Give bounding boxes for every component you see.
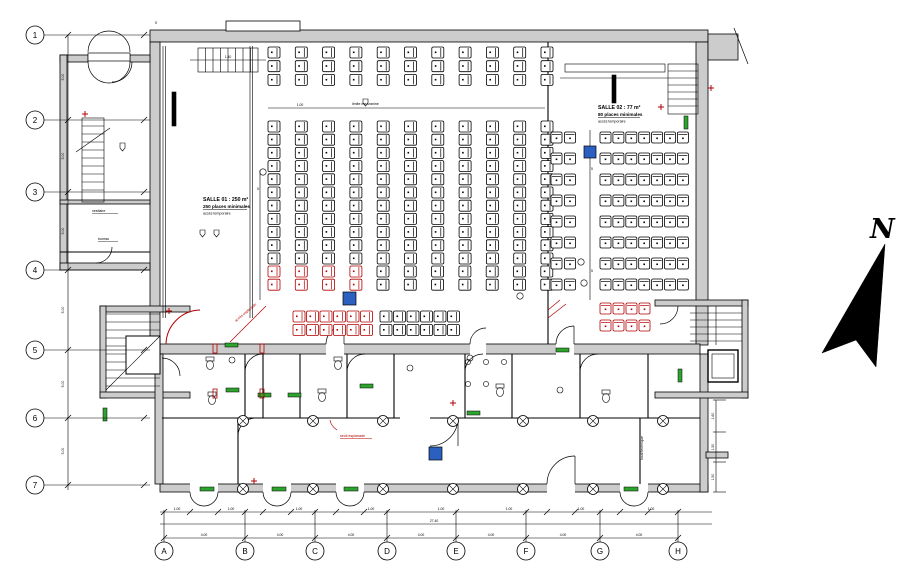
seat-dot bbox=[364, 316, 366, 318]
seat-dot bbox=[380, 52, 382, 54]
seat-dot bbox=[437, 329, 439, 331]
seat-dot bbox=[353, 192, 355, 194]
seat-dot bbox=[435, 178, 437, 180]
blue-marker bbox=[429, 447, 442, 460]
seat bbox=[514, 227, 526, 238]
seat bbox=[350, 187, 362, 198]
seat-dot bbox=[656, 285, 658, 287]
seat bbox=[432, 200, 444, 211]
seat-dot bbox=[326, 152, 328, 154]
seat bbox=[459, 187, 471, 198]
seat-dot bbox=[462, 271, 464, 273]
seat bbox=[320, 311, 332, 322]
seat-dot bbox=[271, 258, 273, 260]
seat-dot bbox=[489, 79, 491, 81]
seat bbox=[295, 147, 307, 158]
seat bbox=[541, 47, 553, 58]
seat bbox=[421, 311, 433, 322]
seat-dot bbox=[556, 138, 558, 140]
seat bbox=[432, 253, 444, 264]
seat-dot bbox=[380, 244, 382, 246]
seat-dot bbox=[435, 126, 437, 128]
seat-dot bbox=[462, 231, 464, 233]
seat-dot bbox=[656, 264, 658, 266]
seat-dot bbox=[556, 243, 558, 245]
seat-dot bbox=[544, 205, 546, 207]
seat-dot bbox=[618, 201, 620, 203]
seat-dot bbox=[669, 264, 671, 266]
seat-dot bbox=[618, 222, 620, 224]
seat bbox=[323, 134, 335, 145]
seat-dot bbox=[517, 65, 519, 67]
mezzanine-label: limite mezzanine bbox=[352, 102, 379, 106]
seat bbox=[459, 134, 471, 145]
seat bbox=[541, 61, 553, 72]
seat bbox=[268, 213, 280, 224]
seat bbox=[268, 134, 280, 145]
seat bbox=[459, 253, 471, 264]
seat-dot bbox=[298, 178, 300, 180]
seat bbox=[486, 61, 498, 72]
seat-dot bbox=[380, 65, 382, 67]
grid-bubble-label: A bbox=[161, 547, 167, 556]
seat-dot bbox=[408, 152, 410, 154]
seat bbox=[377, 121, 389, 132]
seat-dot bbox=[682, 201, 684, 203]
seat bbox=[377, 47, 389, 58]
dimension-text: 5.00 bbox=[61, 448, 65, 455]
seat bbox=[486, 47, 498, 58]
seat bbox=[486, 200, 498, 211]
seat bbox=[350, 227, 362, 238]
seat-dot bbox=[298, 139, 300, 141]
seat-dot bbox=[380, 79, 382, 81]
seat bbox=[486, 279, 498, 290]
seat-dot bbox=[326, 205, 328, 207]
dimension-text: 5.00 bbox=[61, 228, 65, 235]
seat-dot bbox=[353, 205, 355, 207]
seat bbox=[350, 121, 362, 132]
seat bbox=[448, 311, 460, 322]
dimension-text: 1.00 bbox=[297, 103, 304, 107]
seat bbox=[361, 311, 373, 322]
seat-dot bbox=[271, 231, 273, 233]
seat bbox=[434, 311, 446, 322]
seat bbox=[432, 61, 444, 72]
seat-dot bbox=[462, 218, 464, 220]
wc-symbol bbox=[602, 390, 610, 403]
seat-dot bbox=[544, 192, 546, 194]
seat-dot bbox=[298, 205, 300, 207]
dimension-text: 1.60 bbox=[711, 413, 715, 420]
seat-dot bbox=[517, 271, 519, 273]
seat-dot bbox=[326, 52, 328, 54]
seat bbox=[268, 187, 280, 198]
seat bbox=[361, 325, 373, 336]
seat bbox=[350, 174, 362, 185]
seat-dot bbox=[489, 258, 491, 260]
seat bbox=[514, 161, 526, 172]
seat bbox=[432, 174, 444, 185]
dimension-text: 5 bbox=[591, 269, 593, 273]
seat-dot bbox=[326, 139, 328, 141]
seat bbox=[320, 325, 332, 336]
seat-dot bbox=[435, 52, 437, 54]
seat bbox=[486, 227, 498, 238]
seat bbox=[514, 187, 526, 198]
seat bbox=[350, 253, 362, 264]
seat bbox=[432, 240, 444, 251]
seat bbox=[295, 187, 307, 198]
seat-dot bbox=[462, 192, 464, 194]
dimension-text: 5 bbox=[591, 167, 593, 171]
seat bbox=[377, 213, 389, 224]
seat bbox=[486, 253, 498, 264]
seat-dot bbox=[353, 165, 355, 167]
seat bbox=[268, 266, 280, 277]
seat-dot bbox=[682, 180, 684, 182]
seat-dot bbox=[556, 180, 558, 182]
dimension-text: 5.00 bbox=[61, 74, 65, 81]
seat bbox=[377, 279, 389, 290]
seat-dot bbox=[451, 316, 453, 318]
seat-dot bbox=[544, 79, 546, 81]
seat bbox=[514, 253, 526, 264]
seat-dot bbox=[517, 244, 519, 246]
dimension-text: 1.00 bbox=[648, 507, 655, 511]
seat bbox=[350, 161, 362, 172]
north-arrow-pointer bbox=[822, 244, 885, 367]
seat-dot bbox=[517, 126, 519, 128]
seat-dot bbox=[310, 329, 312, 331]
seat-dot bbox=[556, 285, 558, 287]
seat-dot bbox=[380, 165, 382, 167]
seat-dot bbox=[669, 159, 671, 161]
seat-dot bbox=[669, 180, 671, 182]
seat bbox=[486, 266, 498, 277]
seat bbox=[295, 134, 307, 145]
seat-dot bbox=[364, 329, 366, 331]
seat-dot bbox=[618, 309, 620, 311]
seat-dot bbox=[656, 180, 658, 182]
seat bbox=[405, 121, 417, 132]
seat-dot bbox=[517, 52, 519, 54]
seat bbox=[432, 266, 444, 277]
seat bbox=[459, 47, 471, 58]
seat bbox=[486, 240, 498, 251]
seat-dot bbox=[326, 126, 328, 128]
tech-room-label: local technique bbox=[640, 436, 644, 460]
seat bbox=[432, 227, 444, 238]
seat-dot bbox=[462, 126, 464, 128]
grid-bubble-label: 1 bbox=[33, 31, 38, 40]
seat-dot bbox=[643, 285, 645, 287]
dimension-text: 1.00 bbox=[506, 507, 513, 511]
red-note-2: seuil esplanade bbox=[340, 434, 365, 438]
seat-dot bbox=[618, 264, 620, 266]
seat-dot bbox=[380, 192, 382, 194]
seat bbox=[295, 121, 307, 132]
seat bbox=[323, 147, 335, 158]
grid-bubble-label: 4 bbox=[33, 266, 38, 275]
seat-dot bbox=[489, 178, 491, 180]
seat bbox=[432, 47, 444, 58]
seat-dot bbox=[544, 178, 546, 180]
grid-bubble-label: E bbox=[453, 547, 458, 556]
seat-grids bbox=[268, 47, 688, 336]
seat-dot bbox=[618, 243, 620, 245]
seat-dot bbox=[462, 244, 464, 246]
seat bbox=[541, 121, 553, 132]
seat bbox=[459, 240, 471, 251]
dimension-text: 5.00 bbox=[61, 153, 65, 160]
seat-dot bbox=[397, 316, 399, 318]
seat bbox=[407, 325, 419, 336]
dimension-text: 1.40 bbox=[225, 55, 232, 59]
seat-dot bbox=[544, 165, 546, 167]
seat-dot bbox=[489, 52, 491, 54]
seat-dot bbox=[544, 65, 546, 67]
seat-dot bbox=[298, 258, 300, 260]
seat bbox=[405, 47, 417, 58]
seat-dot bbox=[618, 180, 620, 182]
seat-dot bbox=[517, 231, 519, 233]
seat-dot bbox=[569, 180, 571, 182]
grid-bubble-label: F bbox=[524, 547, 529, 556]
seat-dot bbox=[271, 52, 273, 54]
grid-bubble-label: 7 bbox=[33, 481, 38, 490]
seat bbox=[268, 47, 280, 58]
seat-dot bbox=[631, 243, 633, 245]
seat-dot bbox=[326, 165, 328, 167]
seat-dot bbox=[353, 139, 355, 141]
grid-bubble-label: 2 bbox=[33, 116, 38, 125]
seat bbox=[293, 311, 305, 322]
grid-bubble-label: D bbox=[384, 547, 390, 556]
dimension-text: 1.50 bbox=[711, 474, 715, 481]
seat-dot bbox=[408, 79, 410, 81]
seat-dot bbox=[408, 231, 410, 233]
seat-dot bbox=[544, 258, 546, 260]
dimension-text: 4.00 bbox=[277, 533, 284, 537]
blue-marker bbox=[584, 146, 596, 158]
salle02-title: SALLE 02 : 77 m² bbox=[598, 105, 641, 111]
seat bbox=[486, 147, 498, 158]
seat-dot bbox=[669, 243, 671, 245]
seat bbox=[268, 253, 280, 264]
north-arrow: N bbox=[822, 214, 896, 367]
seat-dot bbox=[489, 244, 491, 246]
annex-room-label-2: bureau bbox=[98, 237, 109, 241]
seat bbox=[405, 134, 417, 145]
seat-dot bbox=[631, 326, 633, 328]
seat-dot bbox=[410, 329, 412, 331]
seat-dot bbox=[353, 284, 355, 286]
seat bbox=[394, 325, 406, 336]
seat-dot bbox=[380, 178, 382, 180]
seat bbox=[514, 74, 526, 85]
seat-dot bbox=[644, 309, 646, 311]
seat bbox=[268, 121, 280, 132]
seat-dot bbox=[569, 138, 571, 140]
seat-dot bbox=[489, 126, 491, 128]
seat-dot bbox=[569, 285, 571, 287]
seat bbox=[394, 311, 406, 322]
grid-bubble-label: C bbox=[312, 547, 318, 556]
seat bbox=[404, 279, 416, 290]
seat-dot bbox=[271, 152, 273, 154]
seat bbox=[377, 200, 389, 211]
seat bbox=[295, 227, 307, 238]
seat bbox=[486, 187, 498, 198]
seat bbox=[323, 174, 335, 185]
seat-dot bbox=[517, 178, 519, 180]
seat-dot bbox=[435, 192, 437, 194]
seat-dot bbox=[605, 326, 607, 328]
seat-dot bbox=[298, 79, 300, 81]
seat-dot bbox=[517, 79, 519, 81]
seat bbox=[380, 325, 392, 336]
seat-dot bbox=[656, 222, 658, 224]
seat-dot bbox=[605, 222, 607, 224]
seat bbox=[323, 61, 335, 72]
seat-dot bbox=[326, 284, 328, 286]
seat bbox=[268, 200, 280, 211]
grid-bubble-label: 5 bbox=[33, 346, 38, 355]
seat bbox=[295, 213, 307, 224]
seat bbox=[459, 121, 471, 132]
structural-columns bbox=[238, 416, 669, 495]
dimension-text: 5 bbox=[257, 187, 259, 191]
seat bbox=[334, 311, 346, 322]
seat bbox=[350, 134, 362, 145]
seat bbox=[459, 227, 471, 238]
seat bbox=[323, 266, 335, 277]
dimension-text: 5 bbox=[155, 21, 157, 25]
seat bbox=[486, 213, 498, 224]
seat-dot bbox=[605, 159, 607, 161]
seat-dot bbox=[326, 192, 328, 194]
seat-dot bbox=[353, 152, 355, 154]
dimension-text: 1.00 bbox=[228, 507, 235, 511]
dimension-text: 4.00 bbox=[201, 533, 208, 537]
seat-dot bbox=[298, 52, 300, 54]
seat-dot bbox=[462, 79, 464, 81]
seat bbox=[421, 325, 433, 336]
dimension-text: 27.40 bbox=[430, 519, 439, 523]
seat bbox=[268, 161, 280, 172]
seat bbox=[448, 325, 460, 336]
seat-dot bbox=[682, 243, 684, 245]
seat-dot bbox=[353, 231, 355, 233]
seat-dot bbox=[682, 285, 684, 287]
seat-dot bbox=[353, 271, 355, 273]
seat bbox=[459, 266, 471, 277]
seat bbox=[432, 134, 444, 145]
seat-dot bbox=[298, 165, 300, 167]
seat-dot bbox=[489, 65, 491, 67]
seat bbox=[514, 279, 526, 290]
seat-dot bbox=[618, 159, 620, 161]
seat bbox=[432, 161, 444, 172]
seat-dot bbox=[656, 138, 658, 140]
seat bbox=[323, 213, 335, 224]
seat bbox=[459, 279, 471, 290]
seat bbox=[268, 74, 280, 85]
blue-marker bbox=[343, 292, 356, 305]
seat bbox=[323, 227, 335, 238]
seat-dot bbox=[298, 244, 300, 246]
seat-dot bbox=[337, 329, 339, 331]
seat-dot bbox=[408, 165, 410, 167]
seat-dot bbox=[556, 201, 558, 203]
seat-dot bbox=[326, 79, 328, 81]
seat-dot bbox=[353, 258, 355, 260]
seat-dot bbox=[656, 201, 658, 203]
seat-dot bbox=[544, 218, 546, 220]
seat bbox=[350, 47, 362, 58]
seat-dot bbox=[271, 126, 273, 128]
seat-dot bbox=[682, 222, 684, 224]
seat bbox=[268, 61, 280, 72]
seat-dot bbox=[643, 264, 645, 266]
seat-dot bbox=[618, 285, 620, 287]
seat bbox=[405, 200, 417, 211]
seat-dot bbox=[298, 218, 300, 220]
seat bbox=[377, 74, 389, 85]
seat-dot bbox=[435, 79, 437, 81]
seat-dot bbox=[380, 284, 382, 286]
seat-dot bbox=[643, 159, 645, 161]
seat-dot bbox=[544, 152, 546, 154]
seat-dot bbox=[323, 316, 325, 318]
seat bbox=[377, 134, 389, 145]
seat bbox=[295, 253, 307, 264]
seat-dot bbox=[298, 65, 300, 67]
seat-dot bbox=[517, 258, 519, 260]
seat bbox=[405, 253, 417, 264]
grid-bubble-label: 6 bbox=[33, 414, 38, 423]
seat-dot bbox=[383, 329, 385, 331]
seat bbox=[377, 187, 389, 198]
seat-dot bbox=[435, 65, 437, 67]
seat-dot bbox=[462, 284, 464, 286]
dimension-text: 4.00 bbox=[560, 533, 567, 537]
seat bbox=[350, 200, 362, 211]
seat bbox=[407, 311, 419, 322]
seat-dot bbox=[618, 326, 620, 328]
seat bbox=[350, 147, 362, 158]
seat-dot bbox=[353, 218, 355, 220]
seat-dot bbox=[544, 244, 546, 246]
seat-dot bbox=[380, 271, 382, 273]
dimension-text: 1.00 bbox=[578, 507, 585, 511]
seat-dot bbox=[669, 285, 671, 287]
seat-dot bbox=[631, 180, 633, 182]
seat bbox=[295, 266, 307, 277]
seat-dot bbox=[271, 165, 273, 167]
seat bbox=[268, 240, 280, 251]
seat-dot bbox=[408, 52, 410, 54]
grid-bubble-label: 3 bbox=[33, 188, 38, 197]
seat-dot bbox=[410, 316, 412, 318]
seat-dot bbox=[517, 284, 519, 286]
seat bbox=[514, 134, 526, 145]
seat bbox=[295, 279, 307, 290]
seat-dot bbox=[556, 264, 558, 266]
seat bbox=[486, 174, 498, 185]
seat bbox=[405, 174, 417, 185]
